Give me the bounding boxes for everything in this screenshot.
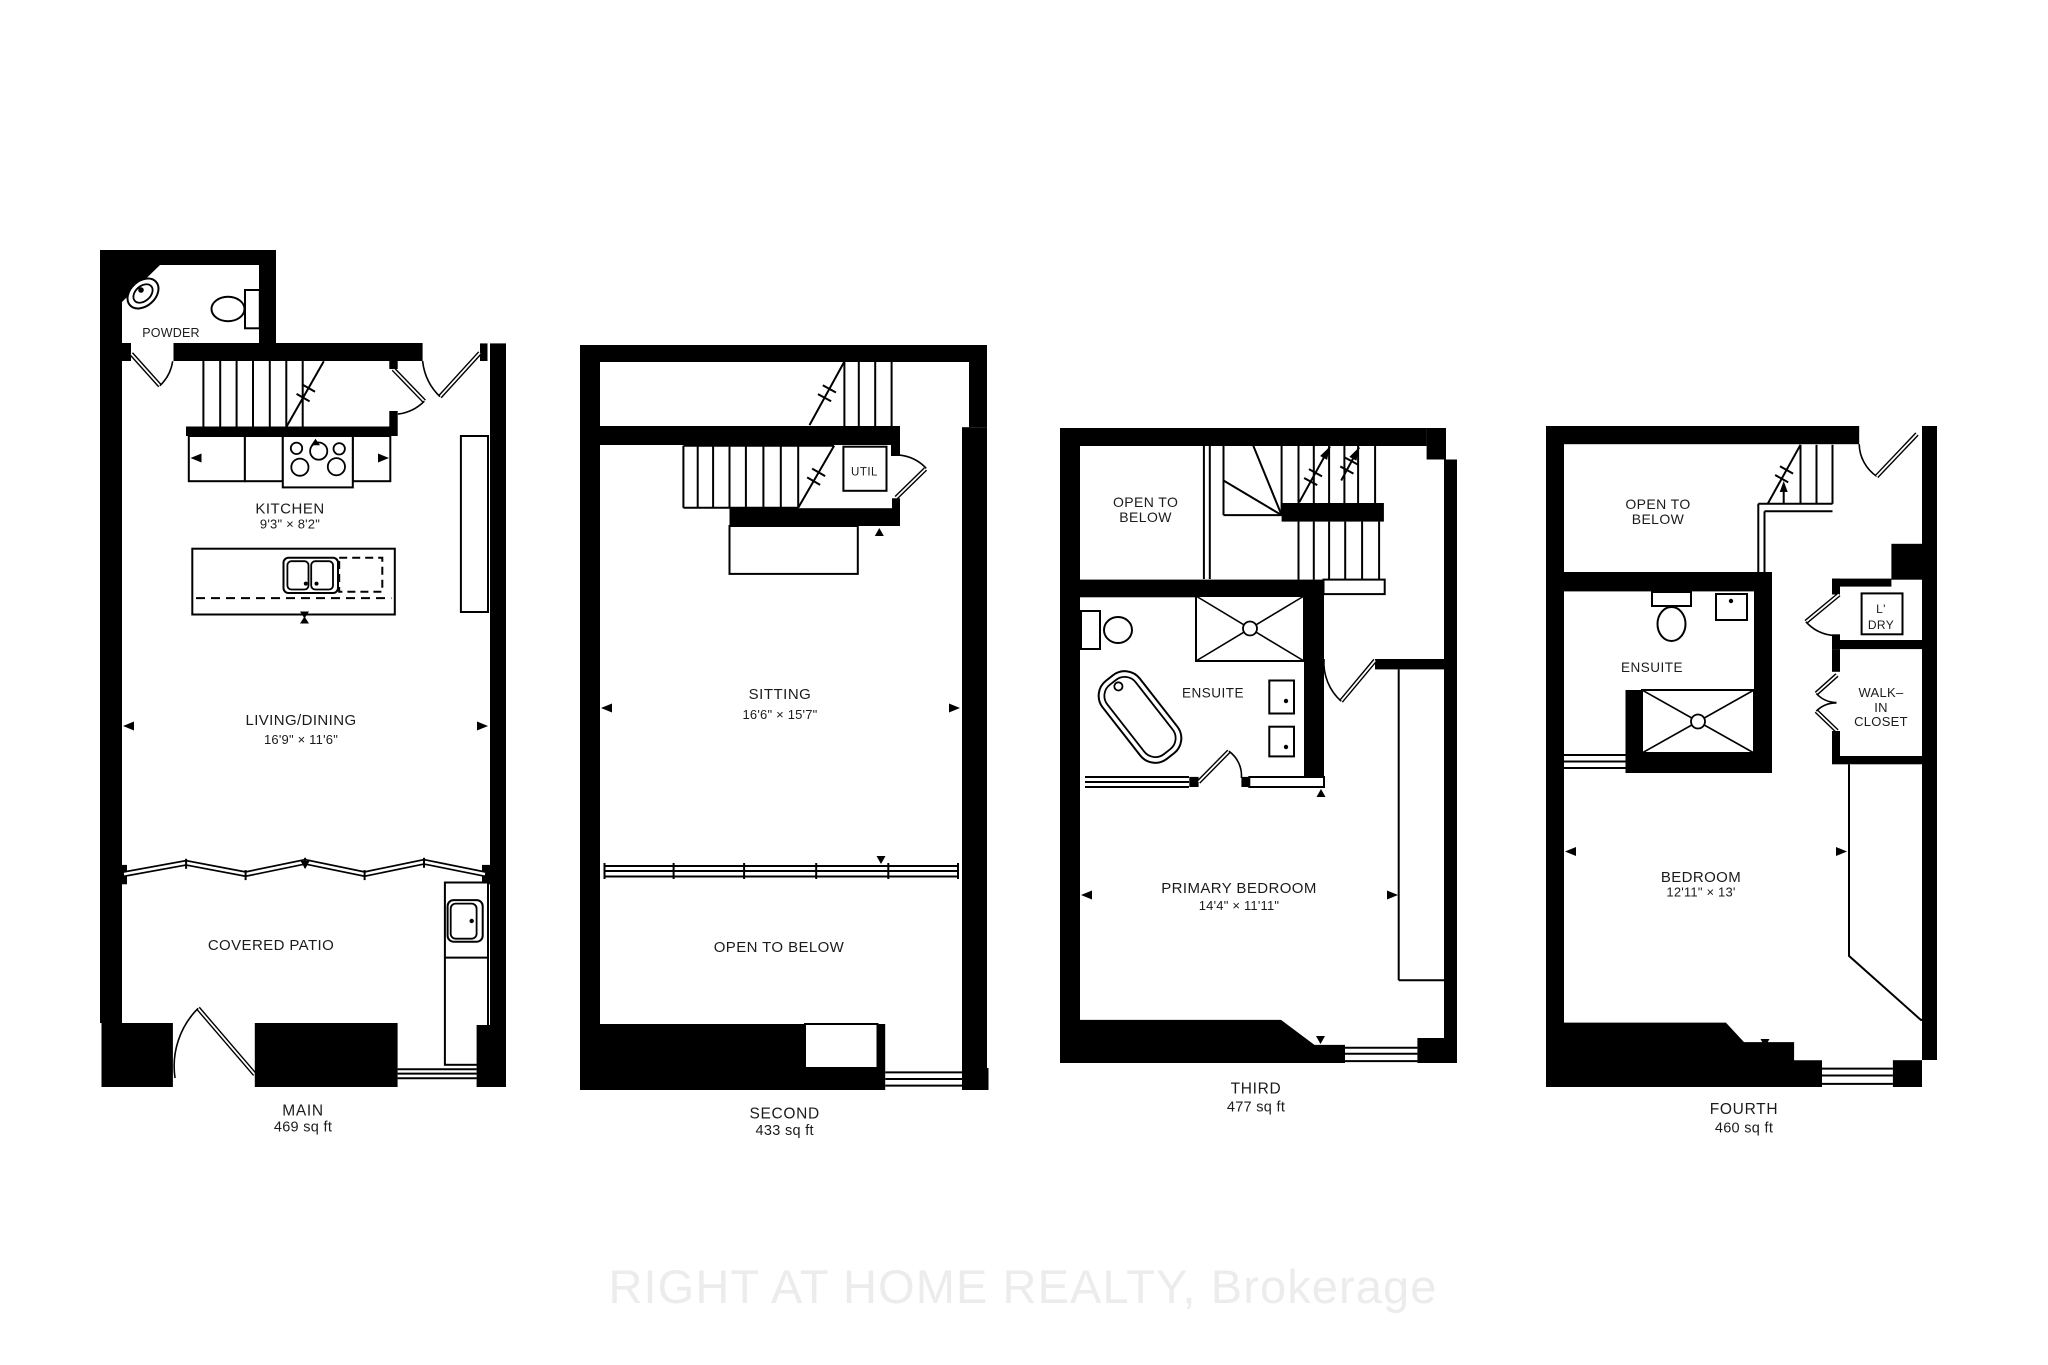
svg-text:PRIMARY BEDROOM: PRIMARY BEDROOM — [1161, 880, 1316, 897]
svg-text:433 sq ft: 433 sq ft — [756, 1123, 814, 1139]
svg-text:UTIL: UTIL — [851, 467, 878, 479]
svg-text:469 sq ft: 469 sq ft — [274, 1120, 332, 1136]
svg-text:LIVING/DINING: LIVING/DINING — [245, 712, 356, 729]
svg-text:MAIN: MAIN — [282, 1103, 324, 1120]
svg-text:16'6" × 15'7": 16'6" × 15'7" — [743, 707, 818, 722]
svg-text:RIGHT AT HOME REALTY, Brokerag: RIGHT AT HOME REALTY, Brokerage — [608, 1260, 1437, 1313]
svg-text:14'4" × 11'11": 14'4" × 11'11" — [1199, 898, 1280, 913]
svg-text:DRY: DRY — [1868, 618, 1894, 632]
svg-text:ENSUITE: ENSUITE — [1182, 686, 1244, 701]
svg-text:IN: IN — [1874, 700, 1888, 715]
svg-text:KITCHEN: KITCHEN — [255, 501, 324, 518]
svg-text:POWDER: POWDER — [142, 326, 199, 340]
svg-text:THIRD: THIRD — [1231, 1081, 1282, 1098]
svg-text:FOURTH: FOURTH — [1710, 1101, 1779, 1118]
svg-text:L': L' — [1876, 602, 1886, 616]
svg-text:BELOW: BELOW — [1119, 509, 1172, 525]
svg-text:477 sq ft: 477 sq ft — [1227, 1100, 1285, 1116]
svg-text:9'3" × 8'2": 9'3" × 8'2" — [260, 517, 320, 532]
svg-text:16'9" × 11'6": 16'9" × 11'6" — [264, 732, 338, 747]
svg-text:BELOW: BELOW — [1632, 511, 1685, 527]
svg-text:CLOSET: CLOSET — [1854, 714, 1908, 729]
svg-text:SECOND: SECOND — [749, 1106, 820, 1123]
svg-text:WALK–: WALK– — [1858, 685, 1904, 700]
svg-text:460 sq ft: 460 sq ft — [1715, 1121, 1773, 1137]
svg-text:SITTING: SITTING — [749, 686, 812, 703]
svg-text:OPEN TO: OPEN TO — [1625, 496, 1690, 512]
svg-text:OPEN TO: OPEN TO — [1113, 494, 1178, 510]
svg-text:COVERED PATIO: COVERED PATIO — [208, 937, 334, 954]
svg-text:BEDROOM: BEDROOM — [1661, 869, 1741, 886]
svg-text:ENSUITE: ENSUITE — [1621, 660, 1683, 675]
svg-text:OPEN TO BELOW: OPEN TO BELOW — [714, 939, 845, 956]
svg-text:12'11" × 13': 12'11" × 13' — [1666, 885, 1735, 900]
